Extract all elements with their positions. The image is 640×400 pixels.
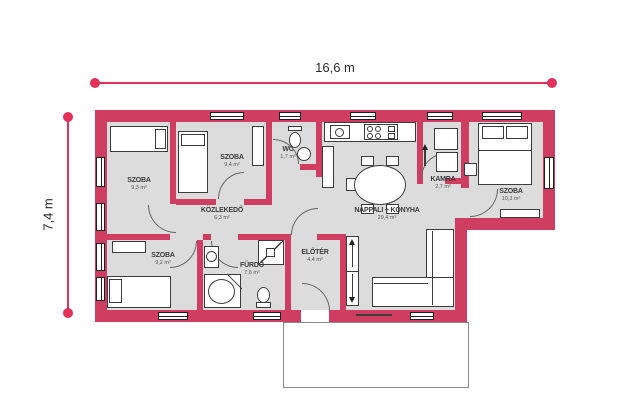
nightstand — [464, 163, 477, 176]
counter-module — [388, 133, 395, 139]
room-area: 1,7 m² — [268, 154, 308, 160]
window — [544, 157, 554, 189]
shower-drain — [266, 248, 275, 257]
room-area: 9,2 m² — [128, 260, 198, 266]
pillow — [181, 134, 205, 146]
dining-table — [354, 165, 406, 205]
width-dimension-line — [95, 82, 552, 84]
toilet-icon — [256, 302, 271, 308]
exterior-wall — [455, 218, 555, 230]
arrow-up-icon — [422, 144, 428, 150]
room-label: SZOBA 9,4 m² — [197, 154, 267, 168]
room-area: 2,7 m² — [413, 184, 473, 190]
room-area: 9,4 m² — [197, 162, 267, 168]
chair — [361, 156, 374, 166]
arrow-line — [352, 274, 353, 298]
pantry-shelf — [436, 152, 458, 172]
floor-plan: 16,6 m 7,4 m — [0, 0, 640, 400]
room-area: 10,3 m² — [476, 196, 546, 202]
stove-burner — [367, 126, 373, 132]
pantry-shelf — [434, 128, 458, 150]
window — [253, 312, 281, 320]
wall-segment — [176, 199, 216, 205]
room-name: WC — [268, 146, 308, 154]
room-label: KÖZLEKEDŐ 6,3 m² — [182, 207, 262, 221]
pillow — [506, 126, 528, 139]
wall-segment — [170, 122, 176, 204]
bathtub-basin — [208, 279, 235, 304]
terrace — [283, 322, 469, 388]
counter-module — [388, 126, 395, 132]
blanket-line — [478, 150, 532, 151]
room-label: ELŐTÉR 4,4 m² — [287, 249, 343, 263]
toilet-icon — [288, 126, 302, 131]
wardrobe-divider — [346, 271, 359, 272]
exterior-wall — [455, 218, 467, 322]
window — [427, 112, 453, 120]
wall-segment — [244, 199, 272, 205]
stove-burner — [367, 133, 373, 139]
width-dimension-label: 16,6 m — [285, 60, 385, 75]
pillow — [109, 279, 122, 303]
entrance-door-opening — [301, 310, 329, 322]
dimension-endpoint-dot — [547, 78, 557, 88]
arrow-down-icon — [349, 297, 355, 303]
pillow — [155, 129, 166, 149]
room-name: SZOBA — [197, 154, 267, 162]
room-name: FÜRDŐ — [217, 262, 287, 270]
chair — [386, 156, 399, 166]
sofa — [372, 277, 454, 307]
room-name: SZOBA — [476, 188, 546, 196]
room-area: 9,3 m² — [104, 185, 174, 191]
stove-burner — [375, 126, 381, 132]
room-area: 6,3 m² — [182, 215, 262, 221]
room-area: 7,6 m² — [217, 270, 287, 276]
room-label: KAMRA 2,7 m² — [413, 176, 473, 190]
dimension-endpoint-dot — [63, 308, 73, 318]
window — [96, 203, 105, 231]
wall-segment — [107, 234, 170, 240]
window — [482, 112, 522, 120]
room-area: 4,4 m² — [287, 257, 343, 263]
window — [96, 277, 105, 301]
wall-segment — [197, 240, 203, 310]
room-name: KÖZLEKEDŐ — [182, 207, 262, 215]
window — [210, 112, 244, 120]
height-dimension-label: 7,4 m — [41, 185, 56, 245]
room-name: SZOBA — [104, 177, 174, 185]
room-label: NAPPALI + KONYHA 29,4 m² — [342, 207, 432, 221]
room-label: FÜRDŐ 7,6 m² — [217, 262, 287, 276]
kitchen-sink-basin — [335, 128, 344, 137]
washbasin-bowl — [206, 251, 217, 262]
stove-burner — [375, 133, 381, 139]
room-label: WC 1,7 m² — [268, 146, 308, 160]
wall-segment — [317, 234, 340, 240]
window — [279, 112, 301, 120]
arrow-line — [424, 150, 426, 166]
toilet-icon — [257, 287, 270, 303]
height-dimension-line — [67, 117, 69, 313]
window — [96, 243, 105, 271]
room-name: ELŐTÉR — [287, 249, 343, 257]
dimension-endpoint-dot — [90, 78, 100, 88]
dresser — [500, 209, 540, 218]
window — [350, 112, 376, 120]
room-label: SZOBA 10,3 m² — [476, 188, 546, 202]
sofa-cushion-line — [374, 283, 428, 284]
room-area: 29,4 m² — [342, 215, 432, 221]
room-label: SZOBA 9,3 m² — [104, 177, 174, 191]
dimension-endpoint-dot — [63, 112, 73, 122]
sofa-cushion-line — [432, 231, 433, 305]
pillow — [482, 126, 504, 139]
room-name: NAPPALI + KONYHA — [342, 207, 432, 215]
window — [410, 312, 434, 320]
section-marker — [356, 314, 392, 316]
wall-segment — [203, 234, 211, 240]
wall-segment — [300, 164, 322, 170]
window — [158, 312, 188, 320]
fridge — [322, 146, 334, 188]
arrow-up-icon — [349, 239, 355, 245]
room-label: SZOBA 9,2 m² — [128, 252, 198, 266]
room-name: KAMRA — [413, 176, 473, 184]
arrow-line — [352, 243, 353, 267]
room-name: SZOBA — [128, 252, 198, 260]
